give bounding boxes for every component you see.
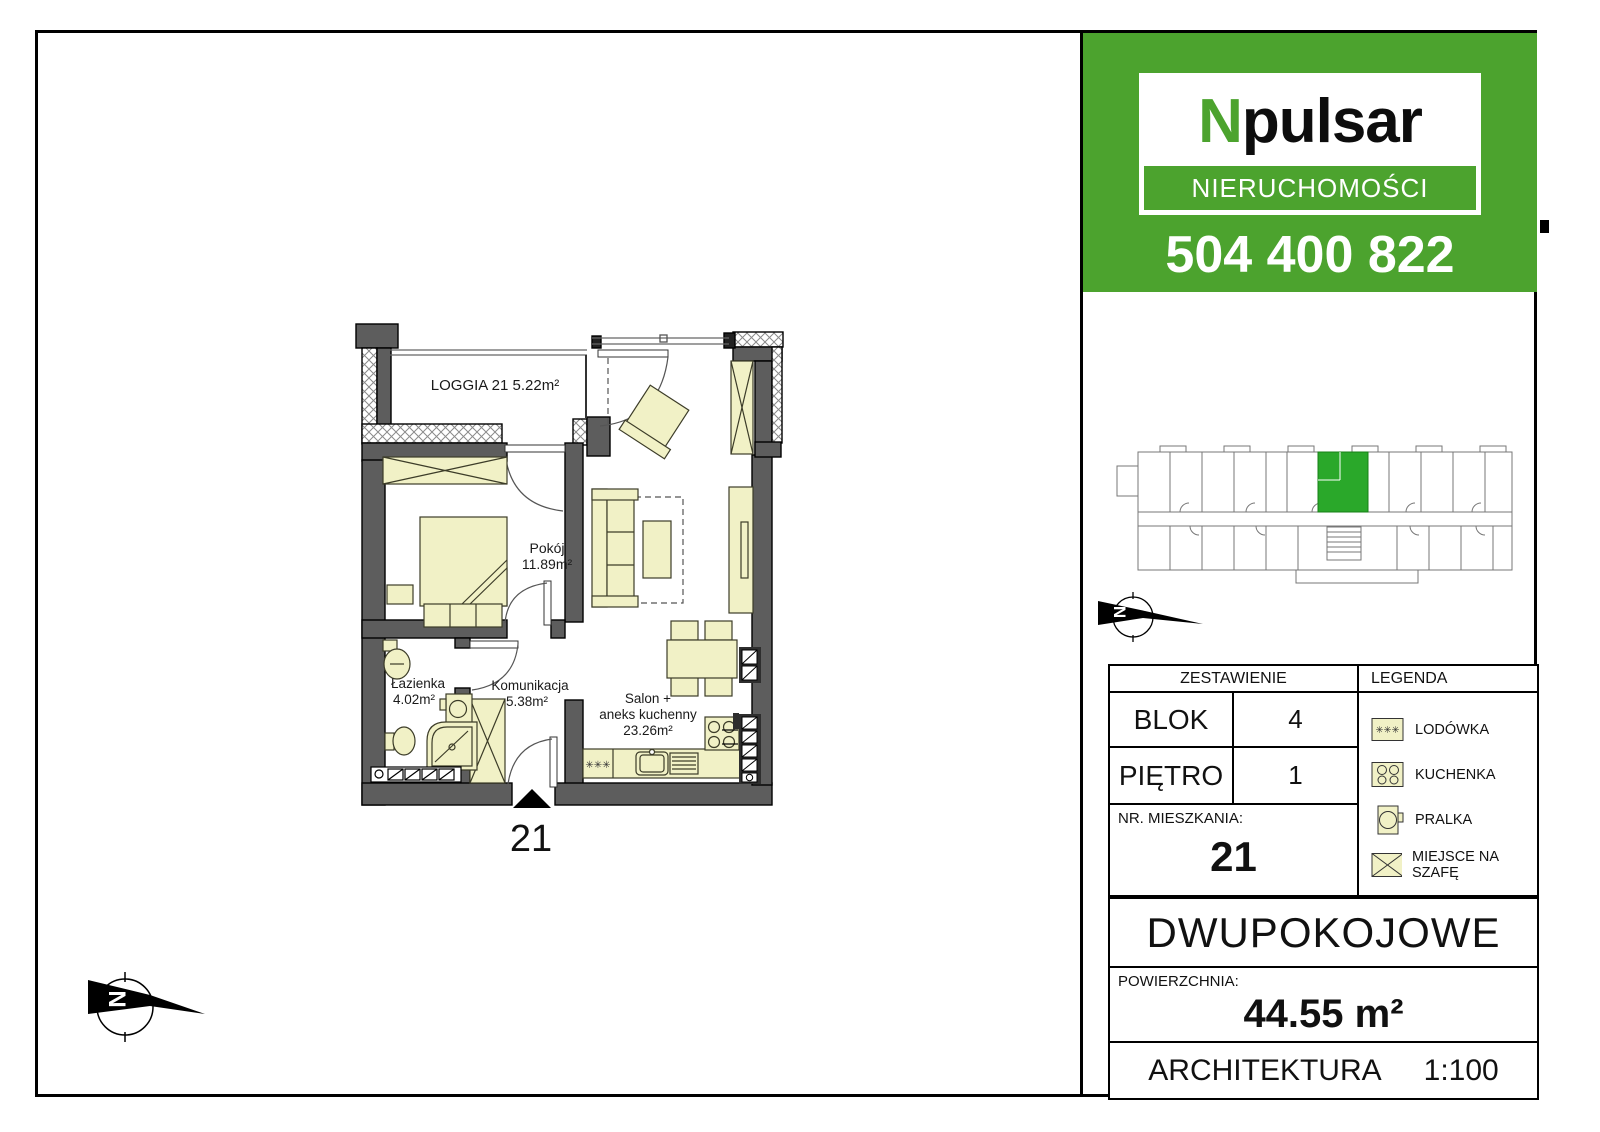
legend-label-szafa: MIEJSCE NA SZAFĘ — [1412, 849, 1537, 881]
edge-tick — [1540, 220, 1549, 233]
scale-value: 1:100 — [1424, 1054, 1499, 1088]
blok-label: BLOK — [1134, 704, 1209, 736]
architecture-row: ARCHITEKTURA 1:100 — [1108, 1041, 1539, 1100]
pietro-value: 1 — [1288, 760, 1302, 791]
stairwell — [1327, 527, 1361, 560]
brand-subtitle: NIERUCHOMOŚCI — [1144, 166, 1476, 210]
highlighted-unit — [1318, 452, 1368, 512]
washer-icon — [1371, 804, 1405, 836]
phone-number: 504 400 822 — [1083, 229, 1537, 281]
blok-label-cell: BLOK — [1108, 691, 1234, 748]
zestawienie-header-label: ZESTAWIENIE — [1180, 670, 1287, 688]
legend-label-lodowka: LODÓWKA — [1415, 722, 1489, 738]
legend-label-pralka: PRALKA — [1415, 812, 1472, 828]
legenda-header-label: LEGENDA — [1371, 670, 1447, 688]
pietro-label: PIĘTRO — [1119, 760, 1223, 792]
pietro-label-cell: PIĘTRO — [1108, 746, 1234, 805]
legend-item-stove: KUCHENKA — [1371, 752, 1537, 797]
legenda-header: LEGENDA — [1357, 664, 1539, 693]
area-row: POWIERZCHNIA: 44.55 m² — [1108, 966, 1539, 1043]
legend-item-wardrobe: MIEJSCE NA SZAFĘ — [1371, 842, 1537, 887]
pietro-value-cell: 1 — [1232, 746, 1359, 805]
stove-icon — [1371, 761, 1405, 788]
key-plan-north-letter: N — [1110, 606, 1129, 618]
brand-logo-rest: pulsar — [1242, 91, 1422, 153]
blok-value: 4 — [1288, 704, 1302, 735]
legend-item-fridge: ✳✳✳ LODÓWKA — [1371, 707, 1537, 752]
fridge-icon: ✳✳✳ — [1371, 717, 1405, 742]
area-value: 44.55 m² — [1110, 992, 1537, 1037]
apartment-number-value: 21 — [1110, 833, 1357, 881]
brand-logo: Npulsar NIERUCHOMOŚCI — [1139, 73, 1481, 215]
apartment-type: DWUPOKOJOWE — [1147, 909, 1501, 957]
key-plan-north-arrow: N — [1098, 592, 1203, 642]
discipline-label: ARCHITEKTURA — [1148, 1054, 1381, 1088]
building-key-plan: N — [1080, 420, 1540, 660]
area-label: POWIERZCHNIA: — [1118, 973, 1239, 990]
wardrobe-icon — [1371, 852, 1402, 878]
legend-label-kuchenka: KUCHENKA — [1415, 767, 1496, 783]
brand-logo-n: N — [1198, 91, 1242, 153]
plan-sheet: 21 LOGGIA 21 5.22m² Pokój 11.89m² Łazien… — [0, 0, 1600, 1132]
apartment-number-cell: NR. MIESZKANIA: 21 — [1108, 803, 1359, 897]
brand-header: Npulsar NIERUCHOMOŚCI 504 400 822 — [1083, 33, 1537, 292]
brand-logo-wordmark: Npulsar — [1144, 78, 1476, 166]
legend-item-washer: PRALKA — [1371, 797, 1537, 842]
apartment-number-label: NR. MIESZKANIA: — [1118, 810, 1243, 827]
fridge-icon-glyphs: ✳✳✳ — [1376, 725, 1400, 736]
zestawienie-header: ZESTAWIENIE — [1108, 664, 1359, 693]
legend-body: ✳✳✳ LODÓWKA KUCHENKA PRALKA — [1357, 691, 1539, 897]
apartment-type-row: DWUPOKOJOWE — [1108, 897, 1539, 968]
blok-value-cell: 4 — [1232, 691, 1359, 748]
